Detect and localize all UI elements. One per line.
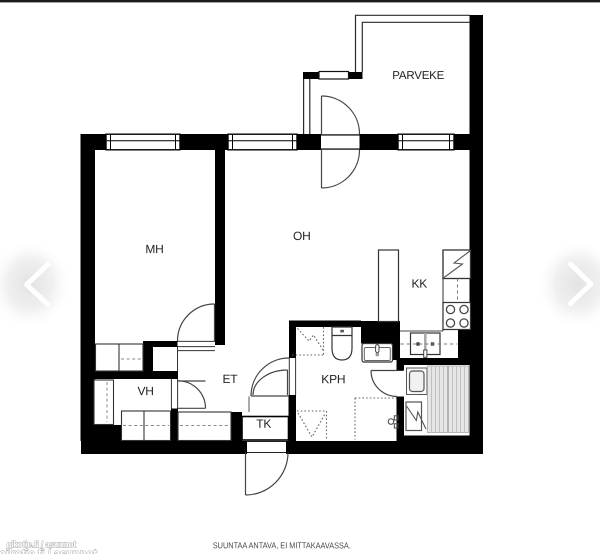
svg-text:VH: VH (137, 384, 153, 398)
svg-text:OH: OH (293, 229, 311, 243)
svg-text:KPH: KPH (321, 372, 345, 386)
svg-text:ET: ET (222, 372, 238, 386)
svg-text:MH: MH (145, 242, 163, 256)
svg-text:SUUNTAA ANTAVA, EI MITTAKAAVAS: SUUNTAA ANTAVA, EI MITTAKAAVASSA. (213, 540, 351, 550)
svg-text:PARVEKE: PARVEKE (392, 70, 444, 82)
svg-text:KK: KK (411, 277, 427, 291)
svg-text:TK: TK (256, 417, 271, 431)
svg-text:oikotie.fi / asunnot: oikotie.fi / asunnot (0, 547, 98, 554)
